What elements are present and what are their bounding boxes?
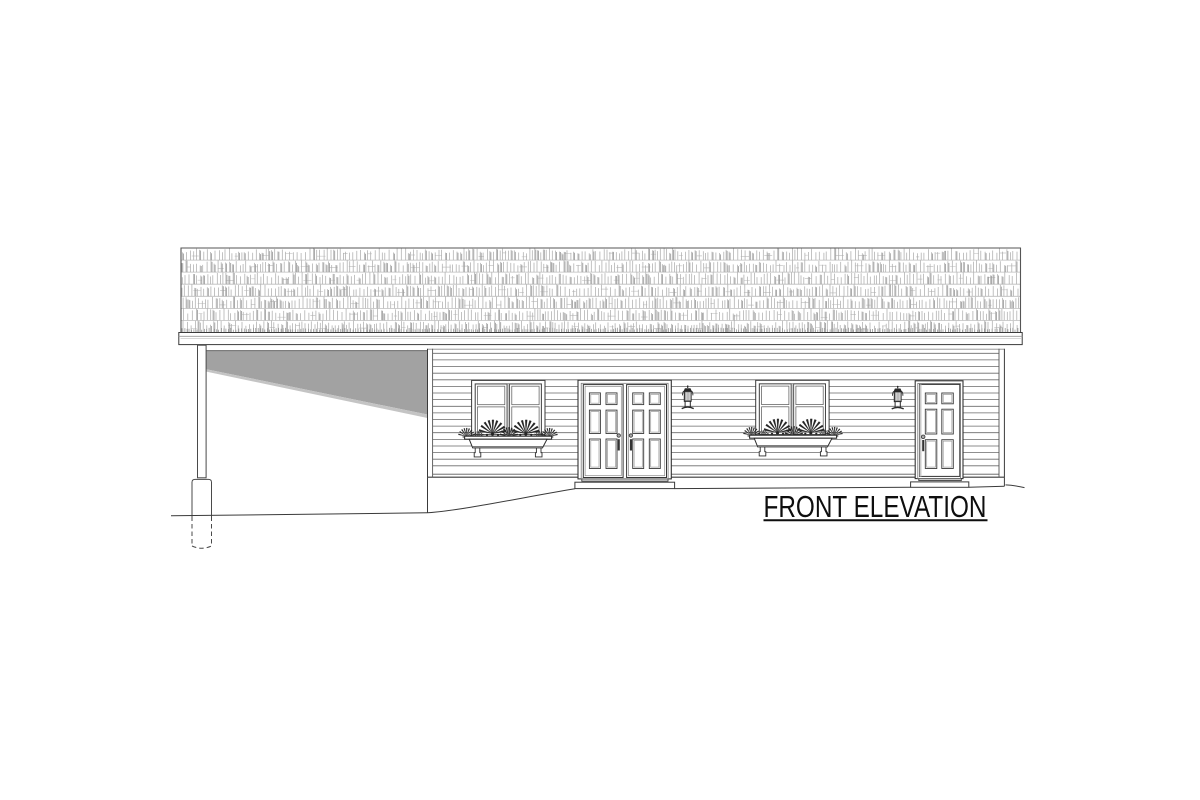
svg-text:FRONT ELEVATION: FRONT ELEVATION: [764, 490, 987, 524]
